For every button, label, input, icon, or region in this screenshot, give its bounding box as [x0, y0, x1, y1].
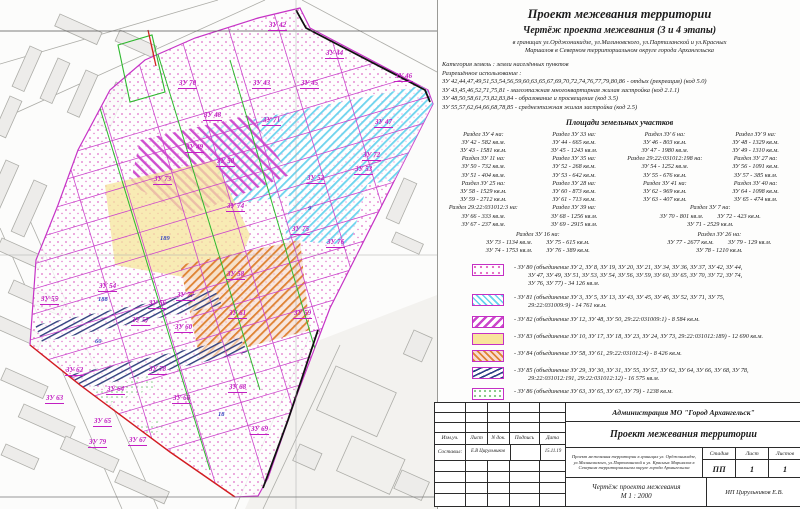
- area-line: ЗУ 53 - 642 кв.м.: [529, 172, 620, 180]
- sheets-label: Листов: [769, 448, 800, 459]
- legend-text-line: - ЗУ 82 (объединение ЗУ 12, ЗУ 48, ЗУ 50…: [514, 316, 700, 324]
- legend-swatch-pink-dots: [472, 264, 504, 276]
- legend-text-line: - ЗУ 83 (объединение ЗУ 10, ЗУ 17, ЗУ 18…: [514, 333, 763, 341]
- legend-item: - ЗУ 82 (объединение ЗУ 12, ЗУ 48, ЗУ 50…: [472, 316, 800, 328]
- area-line: ЗУ 54 - 1252 кв.м.: [620, 163, 711, 171]
- legend-text-line: 29:22:031012:191, 29:22:031012:12) - 16 …: [514, 375, 749, 383]
- permitted-use-line: ЗУ 42,44,47,49,51,53,54,56,59,60,63,65,6…: [442, 78, 800, 87]
- organization-name: Администрация МО "Город Архангельск": [566, 403, 800, 422]
- area-line: ЗУ 68 - 1256 кв.м.: [529, 213, 620, 221]
- area-line: Раздел ЗУ 41 на:: [620, 180, 711, 188]
- legend-item: - ЗУ 80 (объединение ЗУ 2, ЗУ 8, ЗУ 19, …: [472, 264, 800, 289]
- area-line: Раздел ЗУ 28 на:: [529, 180, 620, 188]
- legend-swatch-cyan-hatch: [472, 294, 504, 306]
- legend-item: - ЗУ 81 (объединение ЗУ 3, ЗУ 5, ЗУ 13, …: [472, 294, 800, 311]
- drawing-scale: М 1 : 2000: [621, 492, 652, 501]
- area-line: ЗУ 60 - 873 кв.м.: [529, 188, 620, 196]
- legend-text: - ЗУ 80 (объединение ЗУ 2, ЗУ 8, ЗУ 19, …: [514, 264, 742, 289]
- area-line: ЗУ 66 - 333 кв.м.: [438, 213, 529, 221]
- area-line: ЗУ 52 - 268 кв.м.: [529, 163, 620, 171]
- area-line: Раздел ЗУ 4 на:: [438, 131, 529, 139]
- land-category: Категория земель : земли населённых пунк…: [442, 61, 800, 70]
- area-line: Раздел 29:22:031012:3 на:: [438, 204, 529, 212]
- area-line: ЗУ 69 - 2915 кв.м.: [529, 221, 620, 229]
- areas-column-2: Раздел ЗУ 33 на:ЗУ 44 - 665 кв.м.ЗУ 45 -…: [529, 131, 620, 229]
- legend-text-line: - ЗУ 80 (объединение ЗУ 2, ЗУ 8, ЗУ 19, …: [514, 264, 742, 272]
- area-line: ЗУ 47 - 1980 кв.м.: [620, 147, 711, 155]
- area-line: ЗУ 63 - 407 кв.м.: [620, 196, 711, 204]
- area-line: ЗУ 64 - 1098 кв.м.: [710, 188, 800, 196]
- land-info: Категория земель : земли населённых пунк…: [442, 61, 800, 113]
- areas-column-3: Раздел ЗУ 6 на:ЗУ 46 - 803 кв.м.ЗУ 47 - …: [620, 131, 711, 205]
- areas-list: Раздел ЗУ 4 на:ЗУ 42 - 582 кв.м.ЗУ 43 - …: [438, 131, 800, 256]
- stamp-col-izm: Изм.уч.: [435, 433, 466, 444]
- legend-text: - ЗУ 85 (объединение ЗУ 29, ЗУ 30, ЗУ 31…: [514, 367, 749, 384]
- area-line: ЗУ 42 - 582 кв.м.: [438, 139, 529, 147]
- area-line: ЗУ 48 - 1329 кв.м.: [710, 139, 800, 147]
- stage-value: ПП: [703, 460, 736, 477]
- legend-text: - ЗУ 82 (объединение ЗУ 12, ЗУ 48, ЗУ 50…: [514, 316, 700, 324]
- area-line: ЗУ 46 - 803 кв.м.: [620, 139, 711, 147]
- areas-title: Площади земельных участков: [438, 118, 800, 127]
- legend-item: - ЗУ 84 (объединение ЗУ 58, ЗУ 61, 29:22…: [472, 350, 800, 362]
- composed-name: Е.В Цирульников: [466, 445, 511, 460]
- legend-text-line: ЗУ 47, ЗУ 49, ЗУ 51, ЗУ 53, ЗУ 54, ЗУ 56…: [514, 272, 742, 280]
- composed-label: Составил:: [435, 445, 466, 460]
- area-line: ЗУ 43 - 1581 кв.м.: [438, 147, 529, 155]
- stage-grid: Стадия Лист Листов ПП 1 1: [703, 448, 800, 477]
- areas-column-4: Раздел ЗУ 9 на:ЗУ 48 - 1329 кв.м.ЗУ 49 -…: [710, 131, 800, 205]
- legend-text-line: - ЗУ 85 (объединение ЗУ 29, ЗУ 30, ЗУ 31…: [514, 367, 749, 375]
- stamp-col-data: Дата: [540, 433, 565, 444]
- legend-text-line: - ЗУ 86 (объединение ЗУ 63, ЗУ 65, ЗУ 67…: [514, 388, 673, 396]
- permitted-use-line: ЗУ 43,45,46,52,71,75,81 - малоэтажная мн…: [442, 87, 800, 96]
- drawing-sheet: ЗУ 42ЗУ 44ЗУ 46ЗУ 70ЗУ 43ЗУ 45ЗУ 48ЗУ 71…: [0, 0, 800, 509]
- area-line: ЗУ 62 - 969 кв.м.: [620, 188, 711, 196]
- area-line: Раздел ЗУ 9 на:: [710, 131, 800, 139]
- areas-column-1: Раздел ЗУ 4 на:ЗУ 42 - 582 кв.м.ЗУ 43 - …: [438, 131, 529, 229]
- legend-swatch-navy-crosshatch: [472, 367, 504, 379]
- area-line: ЗУ 44 - 665 кв.м.: [529, 139, 620, 147]
- project-description: Проект межевания территории в границах у…: [566, 448, 703, 477]
- permitted-use-line: ЗУ 55,57,62,64,66,68,78,85 - среднеэтажн…: [442, 104, 800, 113]
- legend-text-line: 29:22:031009:9) - 14 761 кв.м.: [514, 302, 724, 310]
- permitted-use-line: ЗУ 48,50,58,61,73,82,83,84 - образование…: [442, 95, 800, 104]
- legend-item: - ЗУ 83 (объединение ЗУ 10, ЗУ 17, ЗУ 18…: [472, 333, 800, 345]
- sheet-label: Лист: [736, 448, 769, 459]
- area-line: Раздел ЗУ 11 на:: [438, 155, 529, 163]
- legend-item: - ЗУ 85 (объединение ЗУ 29, ЗУ 30, ЗУ 31…: [472, 367, 800, 384]
- legend-item: - ЗУ 86 (объединение ЗУ 63, ЗУ 65, ЗУ 67…: [472, 388, 800, 400]
- page-title: Проект межевания территории: [438, 7, 800, 22]
- area-line: ЗУ 61 - 713 кв.м.: [529, 196, 620, 204]
- area-line: Раздел ЗУ 35 на:: [529, 155, 620, 163]
- legend-swatch-orange-hatch: [472, 350, 504, 362]
- area-line: ЗУ 67 - 237 кв.м.: [438, 221, 529, 229]
- area-line: ЗУ 57 - 385 кв.м.: [710, 172, 800, 180]
- page-subtitle: Чертёж проекта межевания (3 и 4 этапы): [438, 25, 800, 36]
- stamp-col-ndoc: N док.: [488, 433, 510, 444]
- sheets-value: 1: [769, 460, 800, 477]
- legend-swatch-magenta-hatch: [472, 316, 504, 328]
- composed-signature: [511, 445, 541, 460]
- area-line: ЗУ 59 - 2712 кв.м.: [438, 196, 529, 204]
- stamp-col-list: Лист: [466, 433, 488, 444]
- area-line: ЗУ 49 - 1310 кв.м.: [710, 147, 800, 155]
- area-line: Раздел ЗУ 6 на:: [620, 131, 711, 139]
- area-line: ЗУ 65 - 474 кв.м.: [710, 196, 800, 204]
- legend-text-line: - ЗУ 84 (объединение ЗУ 58, ЗУ 61, 29:22…: [514, 350, 682, 358]
- area-line: ЗУ 55 - 676 кв.м.: [620, 172, 711, 180]
- author-name: ИП Цирульников Е.В.: [707, 478, 800, 506]
- area-line: Раздел ЗУ 39 на:: [529, 204, 620, 212]
- areas-group-16: Раздел ЗУ 16 на: ЗУ 73 - 1134 кв.м. ЗУ 7…: [438, 231, 638, 256]
- legend-text: - ЗУ 84 (объединение ЗУ 58, ЗУ 61, 29:22…: [514, 350, 682, 358]
- areas-group-7: Раздел ЗУ 7 на: ЗУ 70 - 801 кв.м. ЗУ 72 …: [620, 204, 800, 229]
- legend: - ЗУ 80 (объединение ЗУ 2, ЗУ 8, ЗУ 19, …: [438, 264, 800, 401]
- stamp-col-podpis: Подпись: [510, 433, 540, 444]
- area-line: ЗУ 50 - 732 кв.м.: [438, 163, 529, 171]
- permitted-use-list: ЗУ 42,44,47,49,51,53,54,56,59,60,63,65,6…: [442, 78, 800, 112]
- stage-label: Стадия: [703, 448, 736, 459]
- legend-swatch-yellow-solid: [472, 333, 504, 345]
- area-line: Раздел 29:22:031012:198 на:: [620, 155, 711, 163]
- legend-swatch-green-dots: [472, 388, 504, 400]
- area-line: Раздел ЗУ 25 на:: [438, 180, 529, 188]
- legend-text: - ЗУ 83 (объединение ЗУ 10, ЗУ 17, ЗУ 18…: [514, 333, 763, 341]
- areas-group-26: Раздел ЗУ 26 на: ЗУ 77 - 2677 кв.м. ЗУ 7…: [638, 231, 800, 256]
- area-line: ЗУ 45 - 1243 кв.м.: [529, 147, 620, 155]
- project-name: Проект межевания территории: [566, 422, 800, 448]
- area-line: ЗУ 58 - 1529 кв.м.: [438, 188, 529, 196]
- drawing-title-cell: Чертёж проекта межевания М 1 : 2000: [566, 478, 707, 506]
- area-line: Раздел ЗУ 27 на:: [710, 155, 800, 163]
- area-line: Раздел ЗУ 33 на:: [529, 131, 620, 139]
- area-line: ЗУ 51 - 404 кв.м.: [438, 172, 529, 180]
- area-line: ЗУ 56 - 1091 кв.м.: [710, 163, 800, 171]
- map-drawing: ЗУ 42ЗУ 44ЗУ 46ЗУ 70ЗУ 43ЗУ 45ЗУ 48ЗУ 71…: [0, 0, 437, 509]
- legend-text-line: - ЗУ 81 (объединение ЗУ 3, ЗУ 5, ЗУ 13, …: [514, 294, 724, 302]
- cadastral-map-canvas: [0, 0, 437, 509]
- title-block: Изм.уч. Лист N док. Подпись Дата Состави…: [434, 402, 800, 507]
- legend-text: - ЗУ 81 (объединение ЗУ 3, ЗУ 5, ЗУ 13, …: [514, 294, 724, 311]
- composed-date: 15.11.19: [541, 445, 565, 460]
- text-panel: Проект межевания территории Чертёж проек…: [437, 0, 800, 509]
- boundary-description: в границах ул.Орджоникидзе, ул.Малиновск…: [438, 39, 800, 55]
- legend-text: - ЗУ 86 (объединение ЗУ 63, ЗУ 65, ЗУ 67…: [514, 388, 673, 396]
- area-line: Раздел ЗУ 40 на:: [710, 180, 800, 188]
- permitted-use-label: Разрешённое использование :: [442, 70, 800, 79]
- stamp-grid: Изм.уч. Лист N док. Подпись Дата Состави…: [435, 403, 566, 506]
- sheet-value: 1: [736, 460, 769, 477]
- legend-text-line: ЗУ 76, ЗУ 77) - 34 126 кв.м.: [514, 280, 742, 288]
